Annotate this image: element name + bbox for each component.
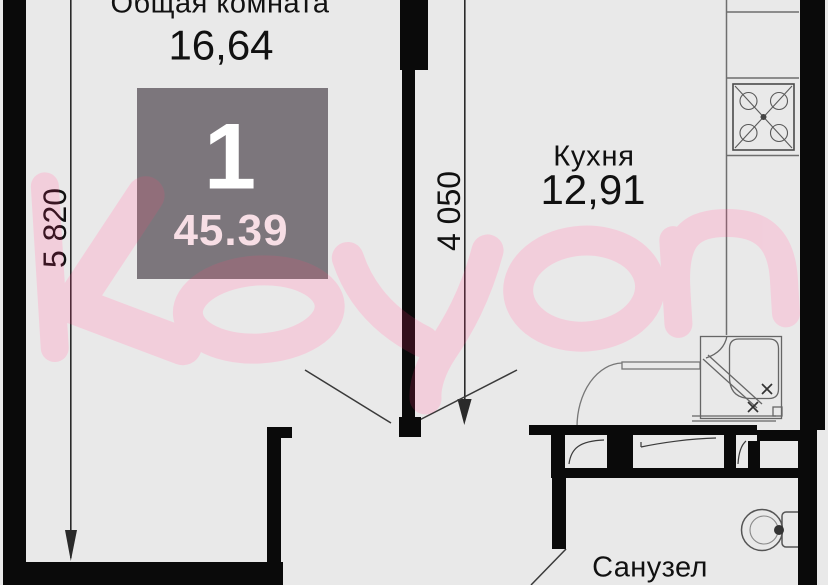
- svg-text:Общая комната: Общая комната: [110, 0, 329, 20]
- svg-text:4 050: 4 050: [431, 171, 467, 251]
- svg-text:45.39: 45.39: [173, 206, 288, 255]
- svg-text:Санузел: Санузел: [592, 552, 708, 584]
- svg-text:1: 1: [204, 104, 256, 209]
- svg-text:16,64: 16,64: [168, 22, 273, 69]
- svg-text:12,91: 12,91: [540, 166, 645, 213]
